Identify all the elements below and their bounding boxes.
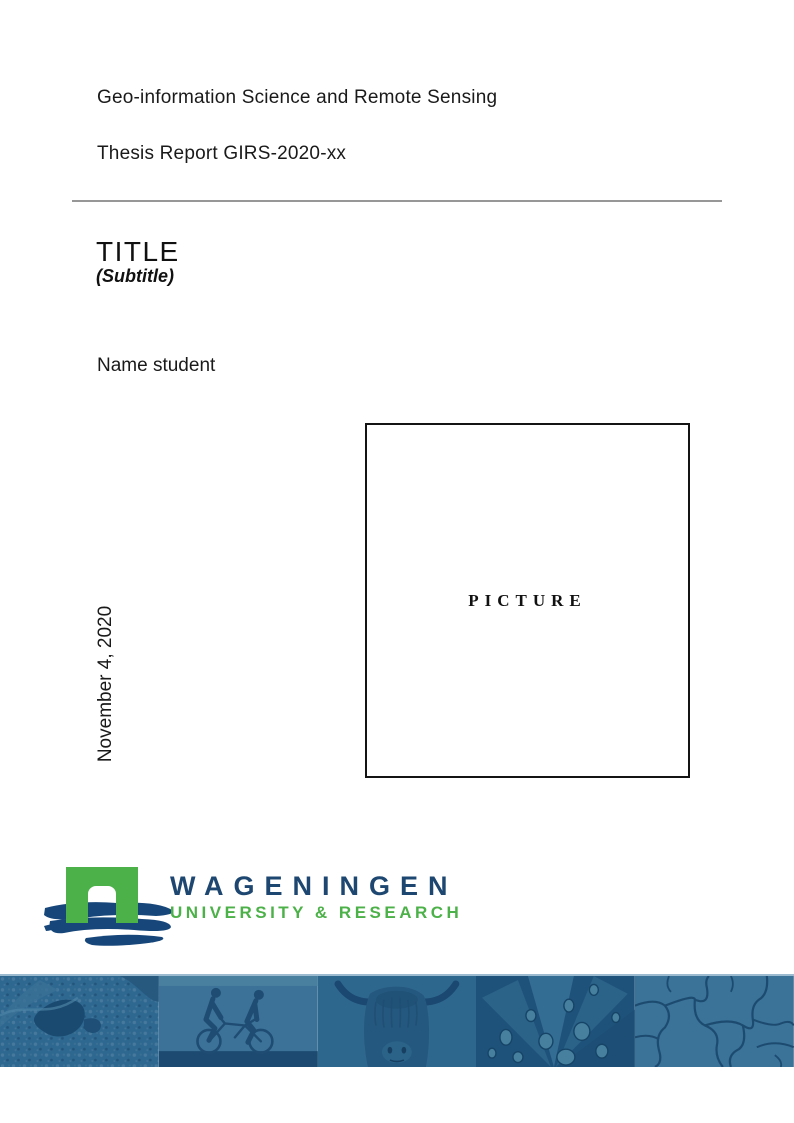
author-name: Name student bbox=[97, 355, 215, 377]
wageningen-logo-icon bbox=[42, 860, 178, 957]
photo-banner bbox=[0, 974, 794, 1067]
program-name: Geo-information Science and Remote Sensi… bbox=[97, 87, 497, 109]
picture-placeholder-label: PICTURE bbox=[468, 591, 587, 611]
thesis-cover-page: Geo-information Science and Remote Sensi… bbox=[0, 0, 794, 1123]
report-identifier: Thesis Report GIRS-2020-xx bbox=[97, 143, 346, 165]
banner-image-cracked-earth bbox=[635, 976, 794, 1067]
banner-image-leaf-water-droplets bbox=[476, 976, 635, 1067]
thesis-subtitle: (Subtitle) bbox=[96, 266, 174, 287]
picture-placeholder-box: PICTURE bbox=[365, 423, 690, 778]
logo-wordmark: WAGENINGEN bbox=[170, 871, 458, 902]
publication-date: November 4, 2020 bbox=[95, 606, 117, 762]
horizontal-rule bbox=[72, 200, 722, 202]
banner-image-highland-cow bbox=[318, 976, 477, 1067]
thesis-title: TITLE bbox=[96, 236, 180, 268]
logo-tagline: UNIVERSITY & RESEARCH bbox=[170, 903, 462, 923]
banner-image-aerial-map bbox=[0, 976, 159, 1067]
banner-image-tandem-cyclists bbox=[159, 976, 318, 1067]
